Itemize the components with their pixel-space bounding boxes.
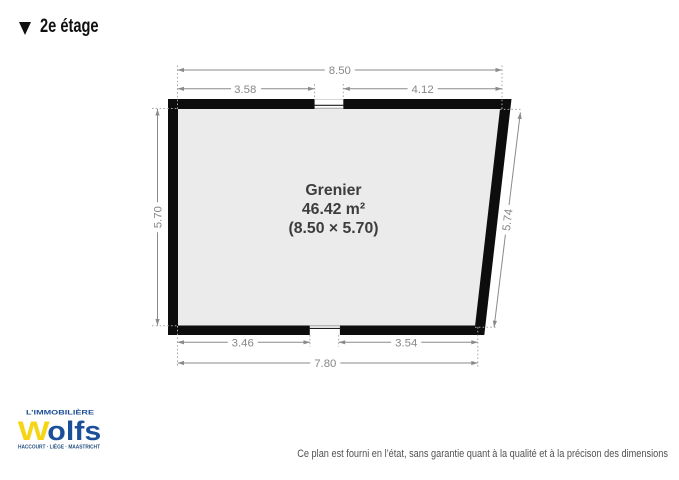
svg-text:4.12: 4.12	[412, 84, 434, 96]
svg-text:8.50: 8.50	[329, 65, 351, 77]
svg-text:HACCOURT · LIÈGE · MAASTRICHT: HACCOURT · LIÈGE · MAASTRICHT	[18, 442, 101, 450]
svg-text:(8.50 × 5.70): (8.50 × 5.70)	[288, 220, 378, 237]
svg-text:3.58: 3.58	[234, 84, 256, 96]
svg-text:7.80: 7.80	[314, 358, 336, 370]
svg-text:5.70: 5.70	[153, 206, 165, 228]
svg-text:3.54: 3.54	[395, 337, 417, 349]
svg-text:46.42 m²: 46.42 m²	[302, 201, 365, 218]
svg-text:olfs: olfs	[47, 416, 101, 446]
svg-text:Grenier: Grenier	[305, 182, 361, 199]
svg-text:3.46: 3.46	[232, 337, 254, 349]
svg-text:5.74: 5.74	[501, 208, 516, 231]
svg-text:W: W	[18, 416, 50, 446]
